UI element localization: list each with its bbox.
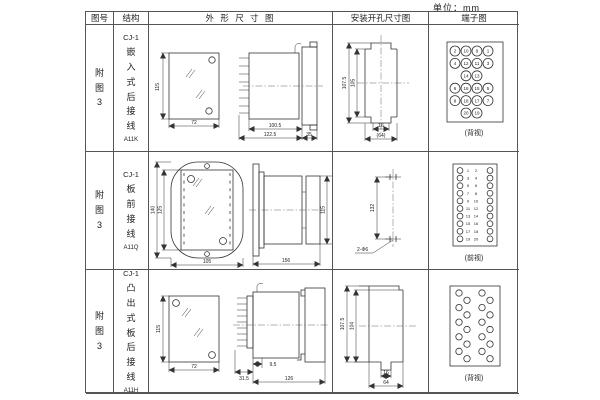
dim-label: 72 (191, 364, 197, 370)
header-outline-dims: 外 形 尺 寸 图 (149, 12, 333, 25)
fig-no-text: 附图3 (94, 66, 106, 111)
dim-label: 31.5 (239, 376, 249, 382)
svg-text:6: 6 (453, 86, 456, 91)
fig-no-cell-2: 附图3 (86, 152, 114, 270)
svg-text:11: 11 (465, 206, 470, 211)
dim-label: 64 (383, 380, 389, 386)
svg-text:13: 13 (465, 213, 470, 218)
fig-no-text: 附图3 (94, 309, 106, 354)
model-label: CJ-1 (123, 170, 139, 179)
model-label: CJ-1 (123, 33, 139, 42)
dim-label: 9.5 (270, 362, 277, 368)
svg-text:12: 12 (473, 206, 478, 211)
svg-text:7: 7 (486, 98, 489, 103)
svg-text:2: 2 (453, 49, 456, 54)
svg-text:9: 9 (475, 49, 478, 54)
terminal-diagram-a11k: 2109141211314136161558181772019 (430, 38, 519, 126)
dim-label: (64) (377, 133, 386, 139)
svg-text:3: 3 (466, 175, 469, 180)
header-terminal: 端子图 (429, 12, 519, 25)
svg-text:18: 18 (463, 98, 469, 103)
terminal-cell-2: 1234567891011121314151617181920 (前视) (429, 152, 519, 270)
svg-text:20: 20 (473, 236, 478, 241)
svg-text:17: 17 (474, 98, 480, 103)
dim-label: 35 (306, 132, 312, 138)
svg-text:14: 14 (463, 74, 469, 79)
install-cell-3: 107.5 104 16 64 (333, 270, 429, 394)
dim-label: 105 (203, 259, 212, 265)
terminal-diagram-a11h (430, 281, 519, 371)
header-fig-no: 图号 (86, 12, 114, 25)
dim-label: 122.5 (264, 132, 277, 138)
svg-text:4: 4 (453, 61, 456, 66)
install-drawing-a11q: 132 2-Φ6 (333, 152, 428, 269)
side-view: 9.5 31.5 126 (233, 283, 329, 384)
structure-cell-2: CJ-1 板前接线 A11Q (114, 152, 149, 270)
hole-spec-label: 2-Φ6 (357, 247, 368, 253)
svg-text:13: 13 (474, 74, 480, 79)
dim-label: 115 (155, 83, 161, 91)
svg-text:18: 18 (473, 228, 478, 233)
svg-text:5: 5 (486, 86, 489, 91)
svg-text:16: 16 (473, 221, 478, 226)
outline-cell-3: 115 72 9.5 (149, 270, 333, 394)
dim-label: 115 (156, 325, 162, 333)
dim-label: 104 (350, 322, 356, 331)
dim-label: 107.5 (340, 318, 346, 331)
svg-text:1: 1 (466, 168, 469, 173)
cutout-profile: 107.5 104 16 64 (340, 286, 417, 388)
svg-text:2: 2 (474, 168, 477, 173)
side-view: 115 156 (249, 164, 332, 266)
svg-text:6: 6 (474, 183, 477, 188)
front-view: 140 125 105 (151, 162, 244, 267)
fig-no-text: 附图3 (94, 188, 106, 233)
document-page: 单位：mm 图号 结构 外 形 尺 寸 图 安装开孔尺寸图 端子图 附图3 CJ… (0, 0, 600, 400)
install-drawing-a11h: 107.5 104 16 64 (333, 270, 428, 393)
svg-text:15: 15 (465, 221, 470, 226)
svg-text:11: 11 (474, 61, 479, 66)
type-code: A11H (124, 388, 139, 394)
svg-text:17: 17 (465, 228, 470, 233)
dim-label: 100.5 (269, 123, 282, 129)
dim-label: 16 (378, 123, 384, 129)
structure-cell-3: CJ-1 凸出式板后接线 A11H (114, 270, 149, 394)
svg-text:10: 10 (473, 198, 478, 203)
dim-label: 125 (158, 206, 164, 215)
dim-label: 107.5 (342, 77, 348, 90)
svg-text:8: 8 (453, 98, 456, 103)
type-code: A11Q (124, 245, 139, 251)
header-structure: 结构 (114, 12, 149, 25)
dim-label: 156 (282, 258, 291, 264)
dim-label: 126 (285, 376, 294, 382)
view-caption: (前视) (465, 253, 484, 263)
fig-no-cell-3: 附图3 (86, 270, 114, 394)
outline-drawing-a11k: 115 72 100.5 (149, 25, 332, 151)
dim-label: 72 (191, 120, 197, 126)
svg-text:16: 16 (463, 86, 469, 91)
svg-text:9: 9 (466, 198, 469, 203)
outline-drawing-a11q: 140 125 105 115 (149, 152, 332, 269)
mounting-holes: 132 2-Φ6 (355, 169, 401, 253)
dim-label: 105 (351, 79, 357, 88)
type-code: A11K (124, 137, 138, 143)
svg-text:20: 20 (463, 111, 469, 116)
model-label: CJ-1 (123, 270, 139, 278)
dim-label: 140 (151, 206, 157, 215)
front-view: 115 72 (155, 53, 219, 128)
install-cell-1: 107.5 105 16 (64) (333, 25, 429, 152)
view-caption: (背视) (465, 373, 484, 383)
side-view: 100.5 122.5 35 (239, 42, 323, 140)
dim-label: 115 (321, 206, 327, 214)
svg-text:3: 3 (486, 61, 489, 66)
svg-text:8: 8 (474, 190, 477, 195)
front-view: 115 72 (156, 296, 219, 372)
view-caption: (背视) (465, 128, 484, 138)
svg-text:15: 15 (474, 86, 480, 91)
header-install-dims: 安装开孔尺寸图 (333, 12, 429, 25)
outline-cell-2: 140 125 105 115 (149, 152, 333, 270)
svg-text:1: 1 (486, 49, 489, 54)
structure-cell-1: CJ-1 嵌入式后接线 A11K (114, 25, 149, 152)
structure-desc: 嵌入式后接线 (125, 45, 137, 134)
outline-drawing-a11h: 115 72 9.5 (149, 270, 332, 393)
install-cell-2: 132 2-Φ6 (333, 152, 429, 270)
spec-table: 图号 结构 外 形 尺 寸 图 安装开孔尺寸图 端子图 附图3 CJ-1 嵌入式… (85, 11, 518, 393)
svg-text:10: 10 (463, 49, 469, 54)
svg-text:19: 19 (465, 236, 470, 241)
dim-label: 16 (383, 370, 389, 376)
terminal-diagram-a11q: 1234567891011121314151617181920 (430, 159, 519, 251)
terminal-cell-3: (背视) (429, 270, 519, 394)
svg-text:7: 7 (466, 190, 469, 195)
structure-desc: 凸出式板后接线 (125, 281, 137, 385)
svg-text:5: 5 (466, 183, 469, 188)
install-drawing-a11k: 107.5 105 16 (64) (333, 25, 428, 151)
svg-text:4: 4 (474, 175, 477, 180)
svg-text:19: 19 (474, 111, 480, 116)
terminal-cell-1: 2109141211314136161558181772019 (背视) (429, 25, 519, 152)
fig-no-cell-1: 附图3 (86, 25, 114, 152)
svg-text:14: 14 (473, 213, 478, 218)
outline-cell-1: 115 72 100.5 (149, 25, 333, 152)
structure-desc: 板前接线 (125, 182, 137, 241)
dim-label: 132 (370, 204, 376, 213)
svg-text:12: 12 (463, 61, 469, 66)
cutout-profile: 107.5 105 16 (64) (342, 35, 409, 141)
